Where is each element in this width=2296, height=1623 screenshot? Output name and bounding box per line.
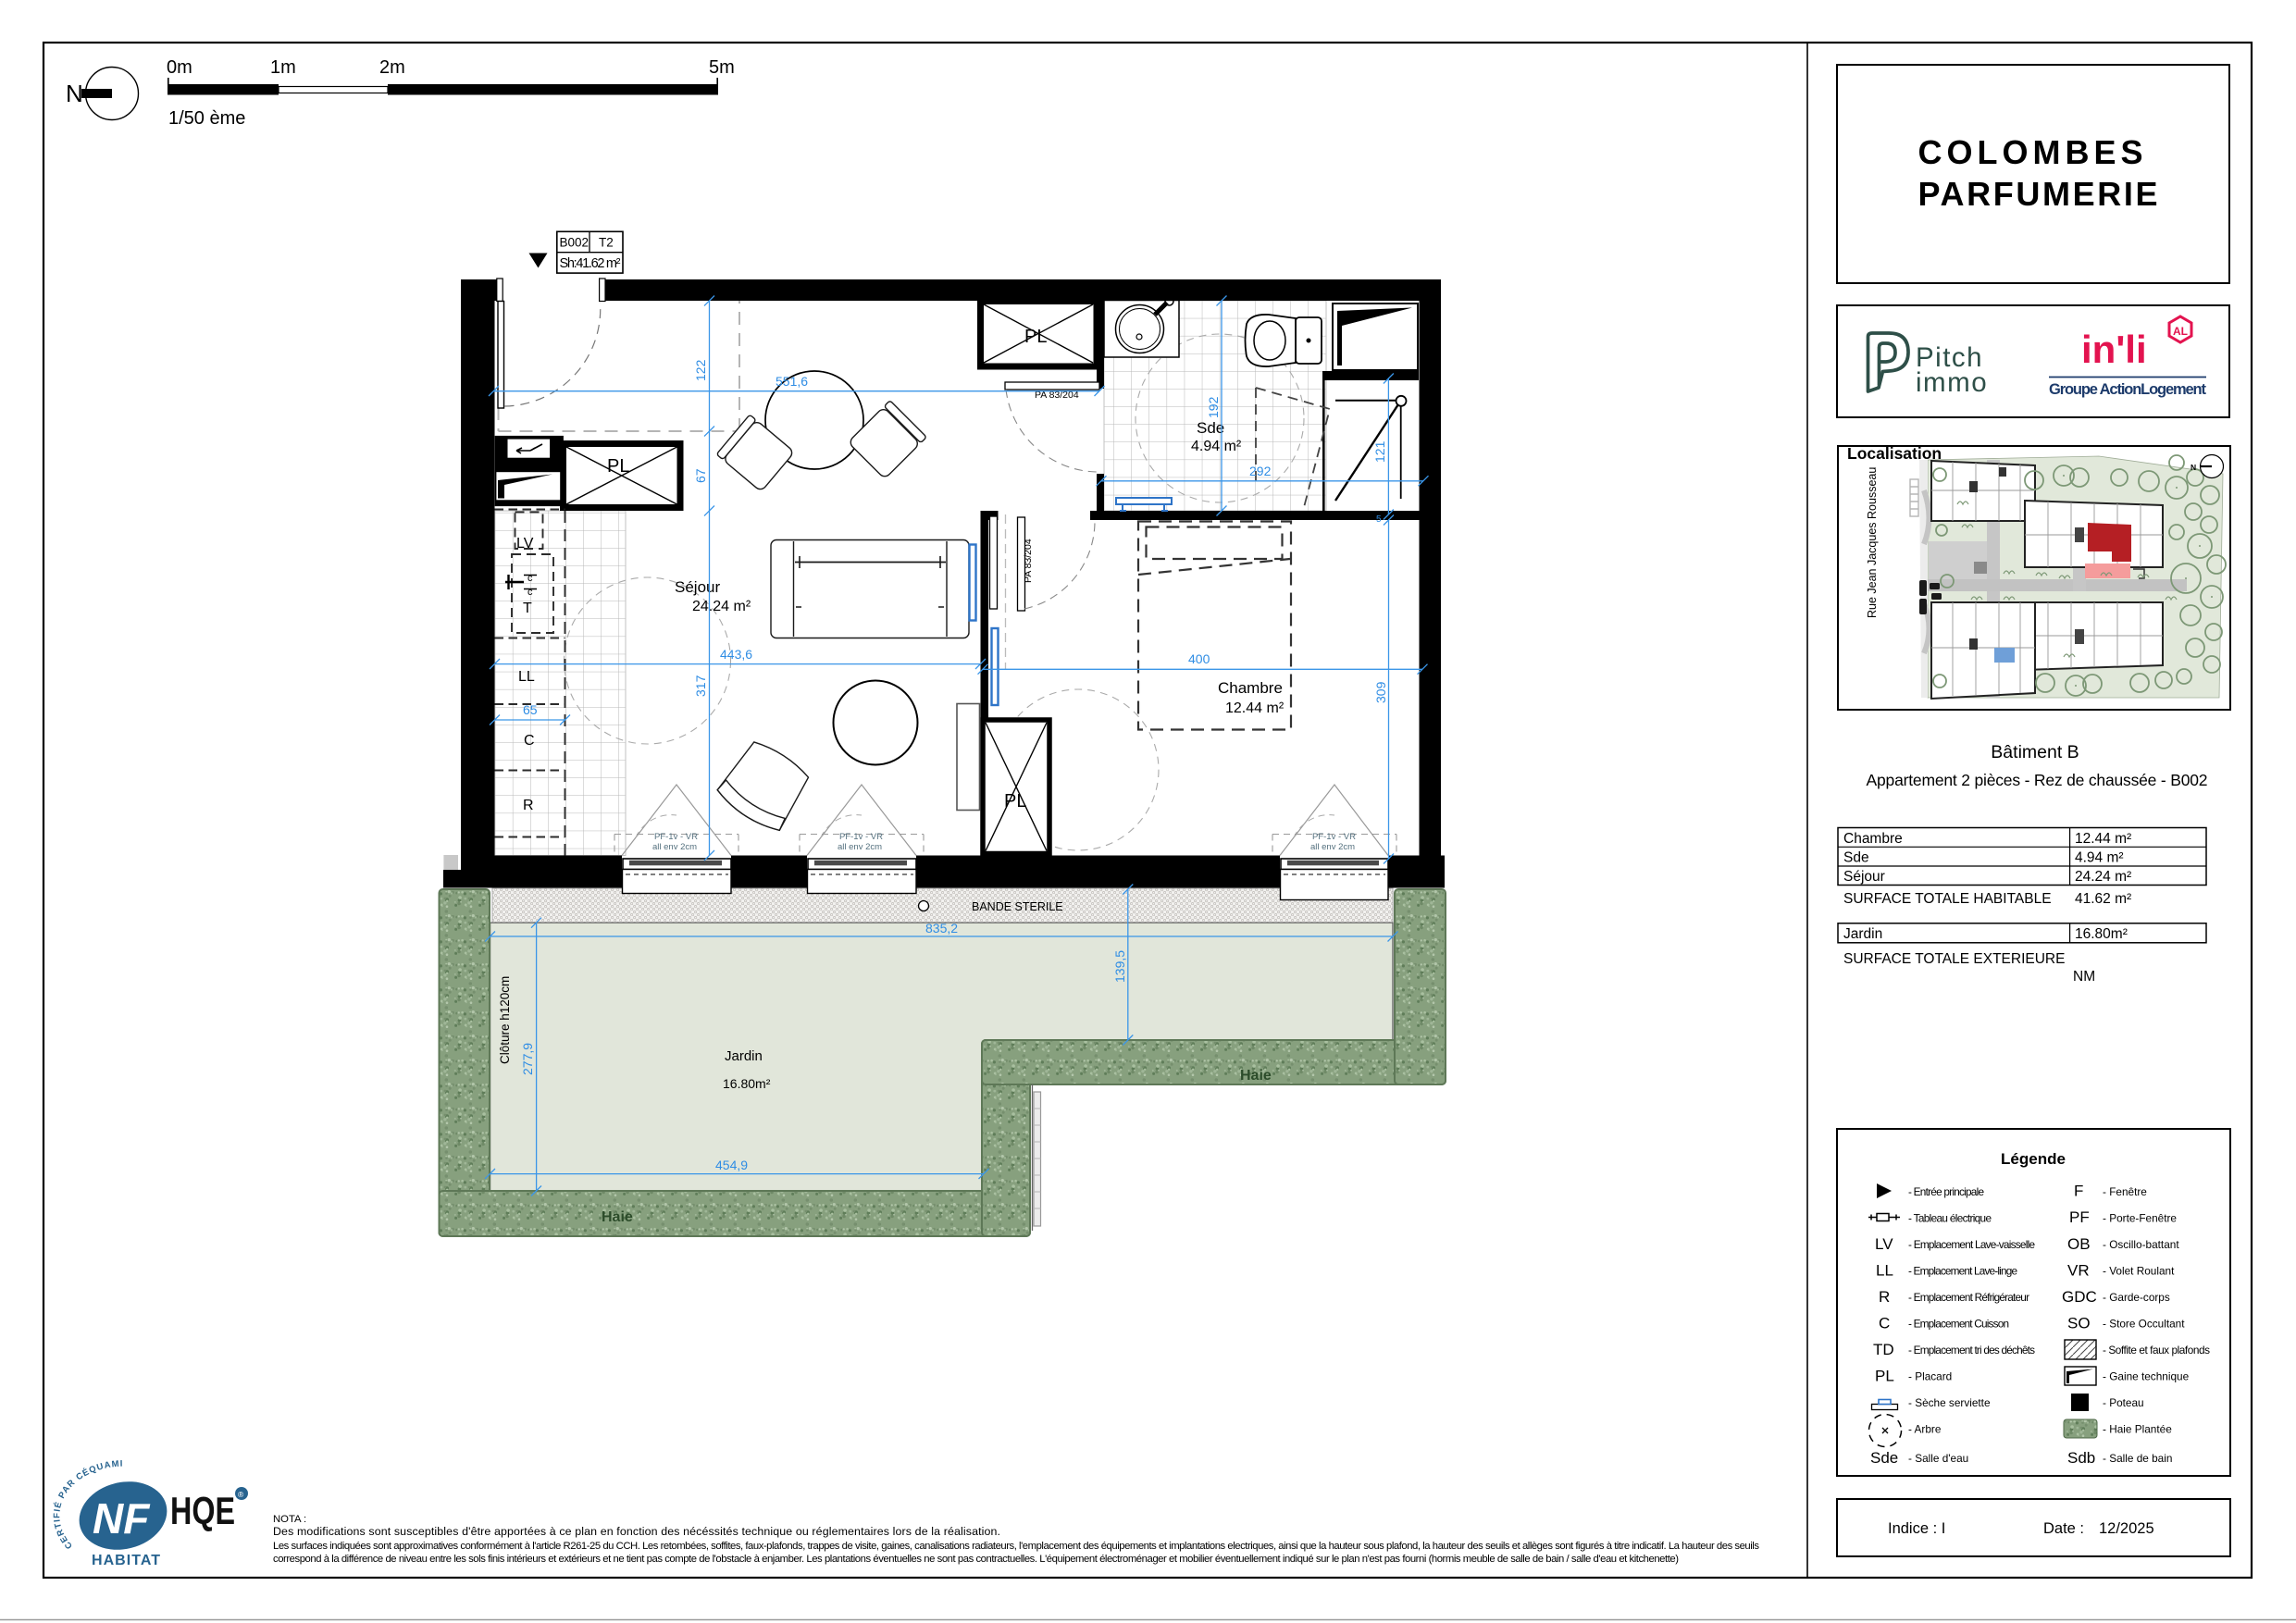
svg-text:PL: PL	[1004, 791, 1026, 811]
svg-text:NF: NF	[93, 1494, 151, 1542]
svg-text:- Soffite et faux plafonds: - Soffite et faux plafonds	[2103, 1344, 2210, 1357]
svg-text:24.24 m²: 24.24 m²	[2075, 869, 2131, 885]
svg-text:- Haie Plantée: - Haie Plantée	[2103, 1423, 2172, 1436]
svg-text:TD: TD	[1873, 1341, 1894, 1358]
svg-text:C: C	[524, 733, 535, 749]
svg-text:HQE: HQE	[170, 1489, 235, 1532]
svg-text:122: 122	[693, 359, 708, 381]
svg-text:Jardin: Jardin	[1843, 926, 1882, 942]
svg-text:NM: NM	[2073, 969, 2095, 985]
svg-text:AL: AL	[2173, 325, 2188, 338]
svg-text:Des modifications sont suscept: Des modifications sont susceptibles d'êt…	[273, 1525, 1000, 1538]
svg-text:- Tableau électrique: - Tableau électrique	[1908, 1212, 1992, 1225]
svg-text:24.24 m²: 24.24 m²	[692, 599, 751, 614]
svg-text:- Garde-corps: - Garde-corps	[2103, 1291, 2170, 1304]
svg-text:12.44 m²: 12.44 m²	[1225, 700, 1285, 716]
svg-text:1m: 1m	[270, 57, 296, 78]
svg-text:N: N	[66, 80, 83, 107]
svg-text:Date :: Date :	[2043, 1520, 2084, 1537]
svg-text:1/50 ème: 1/50 ème	[168, 108, 245, 129]
svg-text:T: T	[523, 601, 532, 616]
svg-text:454,9: 454,9	[715, 1158, 748, 1172]
svg-text:correspond à la différence de: correspond à la différence de niveau ent…	[273, 1554, 1679, 1565]
svg-text:PF-1v - VR: PF-1v - VR	[1312, 832, 1356, 842]
svg-text:Sde: Sde	[1843, 850, 1869, 866]
svg-text:Les surfaces indiquées sont ap: Les surfaces indiquées sont approximativ…	[273, 1541, 1759, 1552]
svg-text:- Gaine technique: - Gaine technique	[2103, 1370, 2190, 1383]
svg-text:16.80m²: 16.80m²	[2075, 926, 2128, 942]
svg-text:C: C	[1879, 1315, 1890, 1332]
svg-text:- Emplacement tri des déchêts: - Emplacement tri des déchêts	[1908, 1344, 2035, 1357]
svg-text:SURFACE TOTALE HABITABLE: SURFACE TOTALE HABITABLE	[1843, 891, 2052, 907]
svg-text:LV: LV	[516, 536, 534, 551]
svg-text:Chambre: Chambre	[1843, 831, 1903, 847]
svg-text:LV: LV	[1875, 1235, 1893, 1253]
svg-text:PL: PL	[1875, 1368, 1894, 1385]
svg-text:BANDE STERILE: BANDE STERILE	[972, 900, 1063, 913]
svg-text:- Oscillo-battant: - Oscillo-battant	[2103, 1238, 2179, 1251]
svg-text:- Emplacement Cuisson: - Emplacement Cuisson	[1908, 1318, 2009, 1331]
svg-text:309: 309	[1373, 681, 1388, 703]
svg-text:4.94 m²: 4.94 m²	[1191, 439, 1242, 454]
svg-text:- Emplacement Lave-linge: - Emplacement Lave-linge	[1908, 1265, 2017, 1278]
svg-text:12.44 m²: 12.44 m²	[2075, 831, 2131, 847]
svg-text:- Porte-Fenêtre: - Porte-Fenêtre	[2103, 1212, 2177, 1225]
svg-text:551,6: 551,6	[776, 374, 808, 389]
svg-text:4.94 m²: 4.94 m²	[2075, 850, 2124, 866]
svg-text:VR: VR	[2067, 1262, 2090, 1280]
svg-text:- Store Occultant: - Store Occultant	[2103, 1318, 2185, 1331]
svg-text:139,5: 139,5	[1112, 950, 1127, 983]
svg-text:PL: PL	[607, 456, 629, 477]
svg-text:all env 2cm: all env 2cm	[838, 842, 882, 852]
svg-text:all env 2cm: all env 2cm	[1310, 842, 1355, 852]
svg-text:F: F	[2074, 1183, 2083, 1200]
svg-text:LL: LL	[518, 669, 535, 685]
svg-text:12/2025: 12/2025	[2099, 1520, 2154, 1537]
svg-text:- Salle d'eau: - Salle d'eau	[1908, 1452, 1968, 1465]
svg-text:R: R	[1879, 1288, 1890, 1306]
svg-text:c: c	[527, 587, 533, 598]
svg-text:LL: LL	[1876, 1262, 1893, 1280]
svg-text:5: 5	[1376, 514, 1382, 525]
svg-text:- Poteau: - Poteau	[2103, 1396, 2144, 1409]
svg-text:Sh:41.62 m²: Sh:41.62 m²	[560, 256, 621, 271]
svg-text:B002: B002	[560, 236, 590, 250]
svg-text:Haie: Haie	[1240, 1068, 1272, 1084]
svg-text:Séjour: Séjour	[1843, 869, 1885, 885]
svg-text:- Emplacement Réfrigérateur: - Emplacement Réfrigérateur	[1908, 1291, 2029, 1304]
svg-text:- Salle de bain: - Salle de bain	[2103, 1452, 2172, 1465]
svg-text:192: 192	[1206, 396, 1221, 418]
svg-text:®: ®	[238, 1490, 244, 1499]
svg-text:41.62 m²: 41.62 m²	[2075, 891, 2131, 907]
svg-text:65: 65	[523, 702, 538, 717]
svg-text:OB: OB	[2067, 1235, 2091, 1253]
svg-text:317: 317	[693, 675, 708, 697]
svg-text:Séjour: Séjour	[675, 578, 720, 596]
svg-text:443,6: 443,6	[720, 647, 752, 662]
svg-text:- Fenêtre: - Fenêtre	[2103, 1185, 2147, 1198]
svg-text:PL: PL	[1024, 327, 1047, 347]
svg-text:Rue Jean Jacques Rousseau: Rue Jean Jacques Rousseau	[1866, 467, 1879, 618]
svg-text:277,9: 277,9	[520, 1043, 535, 1075]
svg-text:SURFACE TOTALE EXTERIEURE: SURFACE TOTALE EXTERIEURE	[1843, 951, 2065, 967]
svg-text:GDC: GDC	[2062, 1288, 2097, 1306]
svg-text:SO: SO	[2067, 1315, 2091, 1332]
svg-text:- Arbre: - Arbre	[1908, 1423, 1942, 1436]
svg-text:Sde: Sde	[1197, 419, 1224, 437]
svg-text:400: 400	[1188, 651, 1210, 666]
svg-text:Jardin: Jardin	[725, 1048, 763, 1064]
svg-text:Indice : I: Indice : I	[1888, 1520, 1945, 1537]
svg-text:292: 292	[1249, 464, 1272, 478]
svg-text:c: c	[527, 573, 533, 584]
svg-text:N: N	[2191, 463, 2196, 472]
svg-text:5m: 5m	[709, 57, 735, 78]
svg-text:Sde: Sde	[1870, 1449, 1898, 1467]
svg-text:- Entrée principale: - Entrée principale	[1908, 1185, 1984, 1198]
svg-text:16.80m²: 16.80m²	[723, 1076, 771, 1091]
svg-text:0m: 0m	[167, 57, 192, 78]
svg-text:in'li: in'li	[2081, 328, 2147, 371]
svg-text:PA 83/204: PA 83/204	[1023, 539, 1034, 583]
svg-text:NOTA :: NOTA :	[273, 1514, 306, 1525]
svg-text:immo: immo	[1916, 367, 1988, 398]
svg-text:835,2: 835,2	[925, 921, 958, 935]
svg-text:Haie: Haie	[602, 1209, 633, 1225]
svg-text:Localisation: Localisation	[1847, 444, 1942, 463]
svg-text:Groupe ActionLogement: Groupe ActionLogement	[2049, 381, 2207, 398]
svg-text:Sdb: Sdb	[2067, 1449, 2095, 1467]
svg-text:R: R	[523, 798, 534, 813]
svg-text:- Placard: - Placard	[1908, 1370, 1952, 1383]
svg-text:67: 67	[693, 468, 708, 483]
svg-text:Légende: Légende	[2001, 1150, 2066, 1168]
svg-text:Clôture h120cm: Clôture h120cm	[498, 976, 512, 1064]
svg-text:Appartement 2 pièces - Rez de: Appartement 2 pièces - Rez de chaussée -…	[1867, 771, 2208, 789]
svg-text:- Volet Roulant: - Volet Roulant	[2103, 1265, 2175, 1278]
svg-text:- Sèche serviette: - Sèche serviette	[1908, 1396, 1991, 1409]
svg-text:PF-1v - VR: PF-1v - VR	[839, 832, 883, 842]
svg-text:PF: PF	[2069, 1208, 2090, 1226]
svg-text:121: 121	[1372, 440, 1387, 463]
svg-text:all env 2cm: all env 2cm	[652, 842, 697, 852]
svg-text:Bâtiment B: Bâtiment B	[1991, 742, 2079, 762]
svg-text:Chambre: Chambre	[1218, 679, 1283, 697]
svg-text:- Emplacement Lave-vaisselle: - Emplacement Lave-vaisselle	[1908, 1238, 2035, 1251]
svg-text:2m: 2m	[379, 57, 405, 78]
svg-text:PF-1v - VR: PF-1v - VR	[654, 832, 698, 842]
svg-text:T2: T2	[599, 236, 614, 250]
svg-text:HABITAT: HABITAT	[92, 1553, 162, 1568]
